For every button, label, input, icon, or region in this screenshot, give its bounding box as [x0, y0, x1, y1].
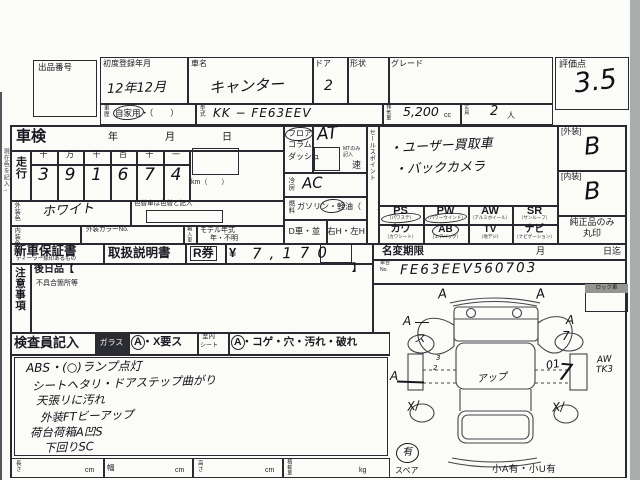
equip-sr-kana: （サンルーフ） [512, 216, 557, 221]
grid-line [460, 103, 462, 125]
note-line: ABS・(○)ランプ点灯 [26, 360, 142, 374]
grid-line [103, 458, 105, 478]
chassis-label: 車台 [380, 261, 390, 266]
ext-grade-label: [外装] [561, 128, 581, 136]
first-reg-label: 初度登録年月 [103, 60, 151, 68]
damage-mark: A [535, 287, 546, 301]
lot-number-label: 出品番号 [38, 63, 72, 72]
shaken-day: 日 [222, 133, 232, 144]
mileage-digit: 4 [163, 167, 189, 184]
grid-line [282, 458, 284, 478]
mt-note2: 記入 [343, 153, 353, 158]
ext-color-label: 外装色 [13, 202, 19, 222]
body-shape-label: 形状 [350, 60, 366, 68]
grid-line [283, 172, 366, 174]
width-label: 幅 [107, 464, 115, 472]
shift-opt-column: コラム [288, 141, 312, 149]
scan-edge-strip [630, 0, 640, 480]
diagram-footer-note: 小A有・小U有 [492, 465, 556, 475]
margin-note: 現在色を記入→ [2, 148, 8, 218]
shift-value: AT [316, 125, 338, 144]
grid-line [10, 354, 390, 356]
model-year-label: モデル年式 [200, 227, 235, 234]
damage-mark: A [403, 315, 411, 327]
first-reg-value: 12年12月 [107, 81, 167, 96]
grid-line [382, 103, 384, 125]
int-grade-label: [内装] [561, 173, 581, 181]
mileage-unit: km（ ） [191, 179, 228, 186]
damage-mark: 3 [436, 355, 440, 362]
lock-label: ロック車 [585, 284, 628, 293]
length-unit: cm [85, 467, 94, 474]
int-grade-value: B [583, 178, 601, 203]
grid-line [388, 57, 390, 103]
car-name-value: キャンター [209, 77, 285, 96]
wheel-mark: X/ [406, 399, 420, 413]
mileage-digit: 6 [110, 167, 136, 184]
manual-label: 取扱説明書 [108, 247, 171, 260]
chassis-value: FE63EEV560703 [400, 262, 538, 278]
height-label: 高さ [196, 460, 202, 476]
repaint-note: 色替車は色替と記入 [134, 201, 193, 208]
rename-label: 名変期限 [382, 246, 424, 257]
inspector-label: 検査員記入 [14, 336, 79, 350]
grid-line [185, 243, 187, 263]
ext-color-value: ホワイト [42, 202, 95, 219]
mileage-digit: 3 [30, 167, 57, 184]
rticket-amount: 7,170 [252, 245, 335, 261]
mileage-spare-box [192, 148, 239, 175]
chassis-label-2: No. [380, 268, 388, 273]
capacity-label: 定員 [463, 104, 468, 123]
mileage-digit: 9 [57, 167, 83, 184]
grid-line [130, 200, 132, 225]
drive-type: D車・並 [283, 219, 326, 243]
door-label: ドア [315, 60, 331, 68]
fuel-mark [320, 198, 346, 214]
grid-line [10, 225, 283, 227]
mileage-col: 十 [136, 151, 163, 159]
grid-line [128, 332, 130, 354]
grade-label: グレード [391, 60, 423, 68]
fuel-label: 燃料 [286, 200, 293, 216]
caution-label: 注意事項 [14, 267, 25, 329]
grid-line [30, 164, 189, 166]
damage-mark: 2 [433, 365, 437, 372]
mileage-col: 十 [30, 151, 57, 159]
shaken-year: 年 [108, 133, 118, 144]
note-line: 荷台荷箱A凹S [30, 426, 103, 439]
width-unit: cm [175, 467, 184, 474]
grid-line [192, 458, 194, 478]
rticket-label: R券 [190, 246, 217, 261]
equip-tv-kana: （地デジ） [468, 235, 512, 240]
damage-mark: A [566, 314, 574, 326]
grid-line [100, 103, 553, 105]
grid-line [225, 243, 227, 263]
grid-line [10, 332, 390, 334]
equip-kawa-kana: （カワシート） [378, 235, 423, 240]
history-label: 車歴 [102, 105, 108, 123]
grid-line [80, 225, 82, 243]
handle-side: 右H・左H [326, 219, 366, 243]
wheel-mark: ス [414, 333, 425, 344]
auction-sheet-scan: 出品番号 初度登録年月 12年12月 車名 キャンター ドア 2 形状 グレード… [0, 0, 640, 480]
door-value: 2 [324, 79, 333, 93]
mt-speed-box [314, 147, 340, 171]
shaken-label: 車検 [16, 129, 46, 145]
grid-line [189, 150, 191, 200]
genuine-note-2: 丸印 [557, 229, 627, 238]
score-value: 3.5 [573, 65, 619, 97]
ext-grade-value: B [583, 133, 602, 159]
spare-label: スペア [395, 467, 418, 475]
glass-label: ガラス [95, 332, 128, 354]
rename-month: 月 [536, 247, 545, 256]
equip-aw-kana: （アルミホイール） [468, 216, 512, 221]
grid-line [347, 57, 349, 103]
shaken-month: 月 [165, 133, 175, 144]
wheel-mark: 7 [562, 330, 570, 342]
car-name-label: 車名 [191, 60, 207, 68]
mileage-col: 一 [163, 151, 189, 159]
seat-note: A・コゲ・穴・汚れ・破れ [234, 337, 357, 348]
later-items-label: 後日品【 [34, 265, 74, 276]
seat-label-2: シート [200, 343, 218, 349]
grid-line [228, 332, 230, 354]
mileage-digit: 7 [136, 167, 163, 184]
grid-line [197, 332, 199, 354]
color-no-label: 外装カラーNo. [86, 227, 129, 234]
displacement-value: 5,200 [403, 106, 439, 119]
genuine-note: 純正品のみ [557, 218, 627, 227]
grid-line [30, 263, 32, 332]
grid-line [10, 125, 12, 478]
grid-line [283, 196, 366, 198]
repaint-box [146, 210, 223, 223]
mark-line [415, 322, 429, 323]
damage-mark: 7 [557, 361, 574, 385]
grid-line [196, 225, 198, 243]
height-unit: cm [265, 467, 274, 474]
seat-label: 室内 [202, 334, 215, 341]
warranty-note: ディーラー捺印あるもの [16, 257, 76, 263]
grid-line [187, 57, 189, 103]
later-items-close: 】 [352, 264, 362, 275]
damage-mark: TK3 [596, 366, 614, 376]
rename-until: 日迄 [603, 247, 621, 256]
model-code-value: KK − FE63EEV [213, 107, 312, 119]
sales-point-2: ・バックカメラ [394, 160, 485, 176]
capacity-value: 2 [490, 105, 498, 118]
capacity-unit: 人 [507, 112, 515, 120]
displacement-label: 排気量 [385, 104, 390, 123]
note-line: 天張リに汚れ [36, 394, 105, 407]
equip-navi-kana: （ナビゲーション） [512, 235, 557, 240]
mileage-col: 万 [57, 151, 83, 159]
grid-line [312, 57, 314, 103]
grid-line [103, 243, 105, 263]
model-code-label: 型式 [198, 105, 204, 123]
mileage-col: 千 [83, 151, 110, 159]
model-year-value: 年・不明 [210, 235, 238, 242]
length-label: 長さ [14, 460, 20, 476]
grid-line [372, 243, 374, 332]
load-label: 積載量 [286, 459, 291, 477]
sales-point-1: ・ユーザー買取車 [389, 137, 493, 155]
import-label: 輸入車 [186, 226, 191, 242]
damage-mark: A [437, 288, 447, 302]
defect-label: 不具合箇所等 [36, 280, 78, 287]
note-line: 下回りSC [44, 441, 94, 454]
wheel-mark: X/ [551, 400, 564, 413]
mileage-col: 百 [110, 151, 136, 159]
load-unit: kg [359, 467, 366, 474]
ac-value: AC [302, 175, 324, 191]
speed-suffix: 速 [352, 161, 361, 170]
ac-label: 冷房 [286, 177, 293, 193]
mileage-digit: 1 [83, 167, 110, 184]
grid-line [195, 103, 197, 125]
mileage-label: 走行 [14, 156, 26, 188]
seat-a-mark [230, 335, 245, 351]
grid-line [183, 225, 185, 243]
sales-point-label: セールスポイント [368, 129, 374, 203]
displacement-unit: cc [444, 112, 451, 119]
yen-sign: ¥ [229, 246, 236, 260]
